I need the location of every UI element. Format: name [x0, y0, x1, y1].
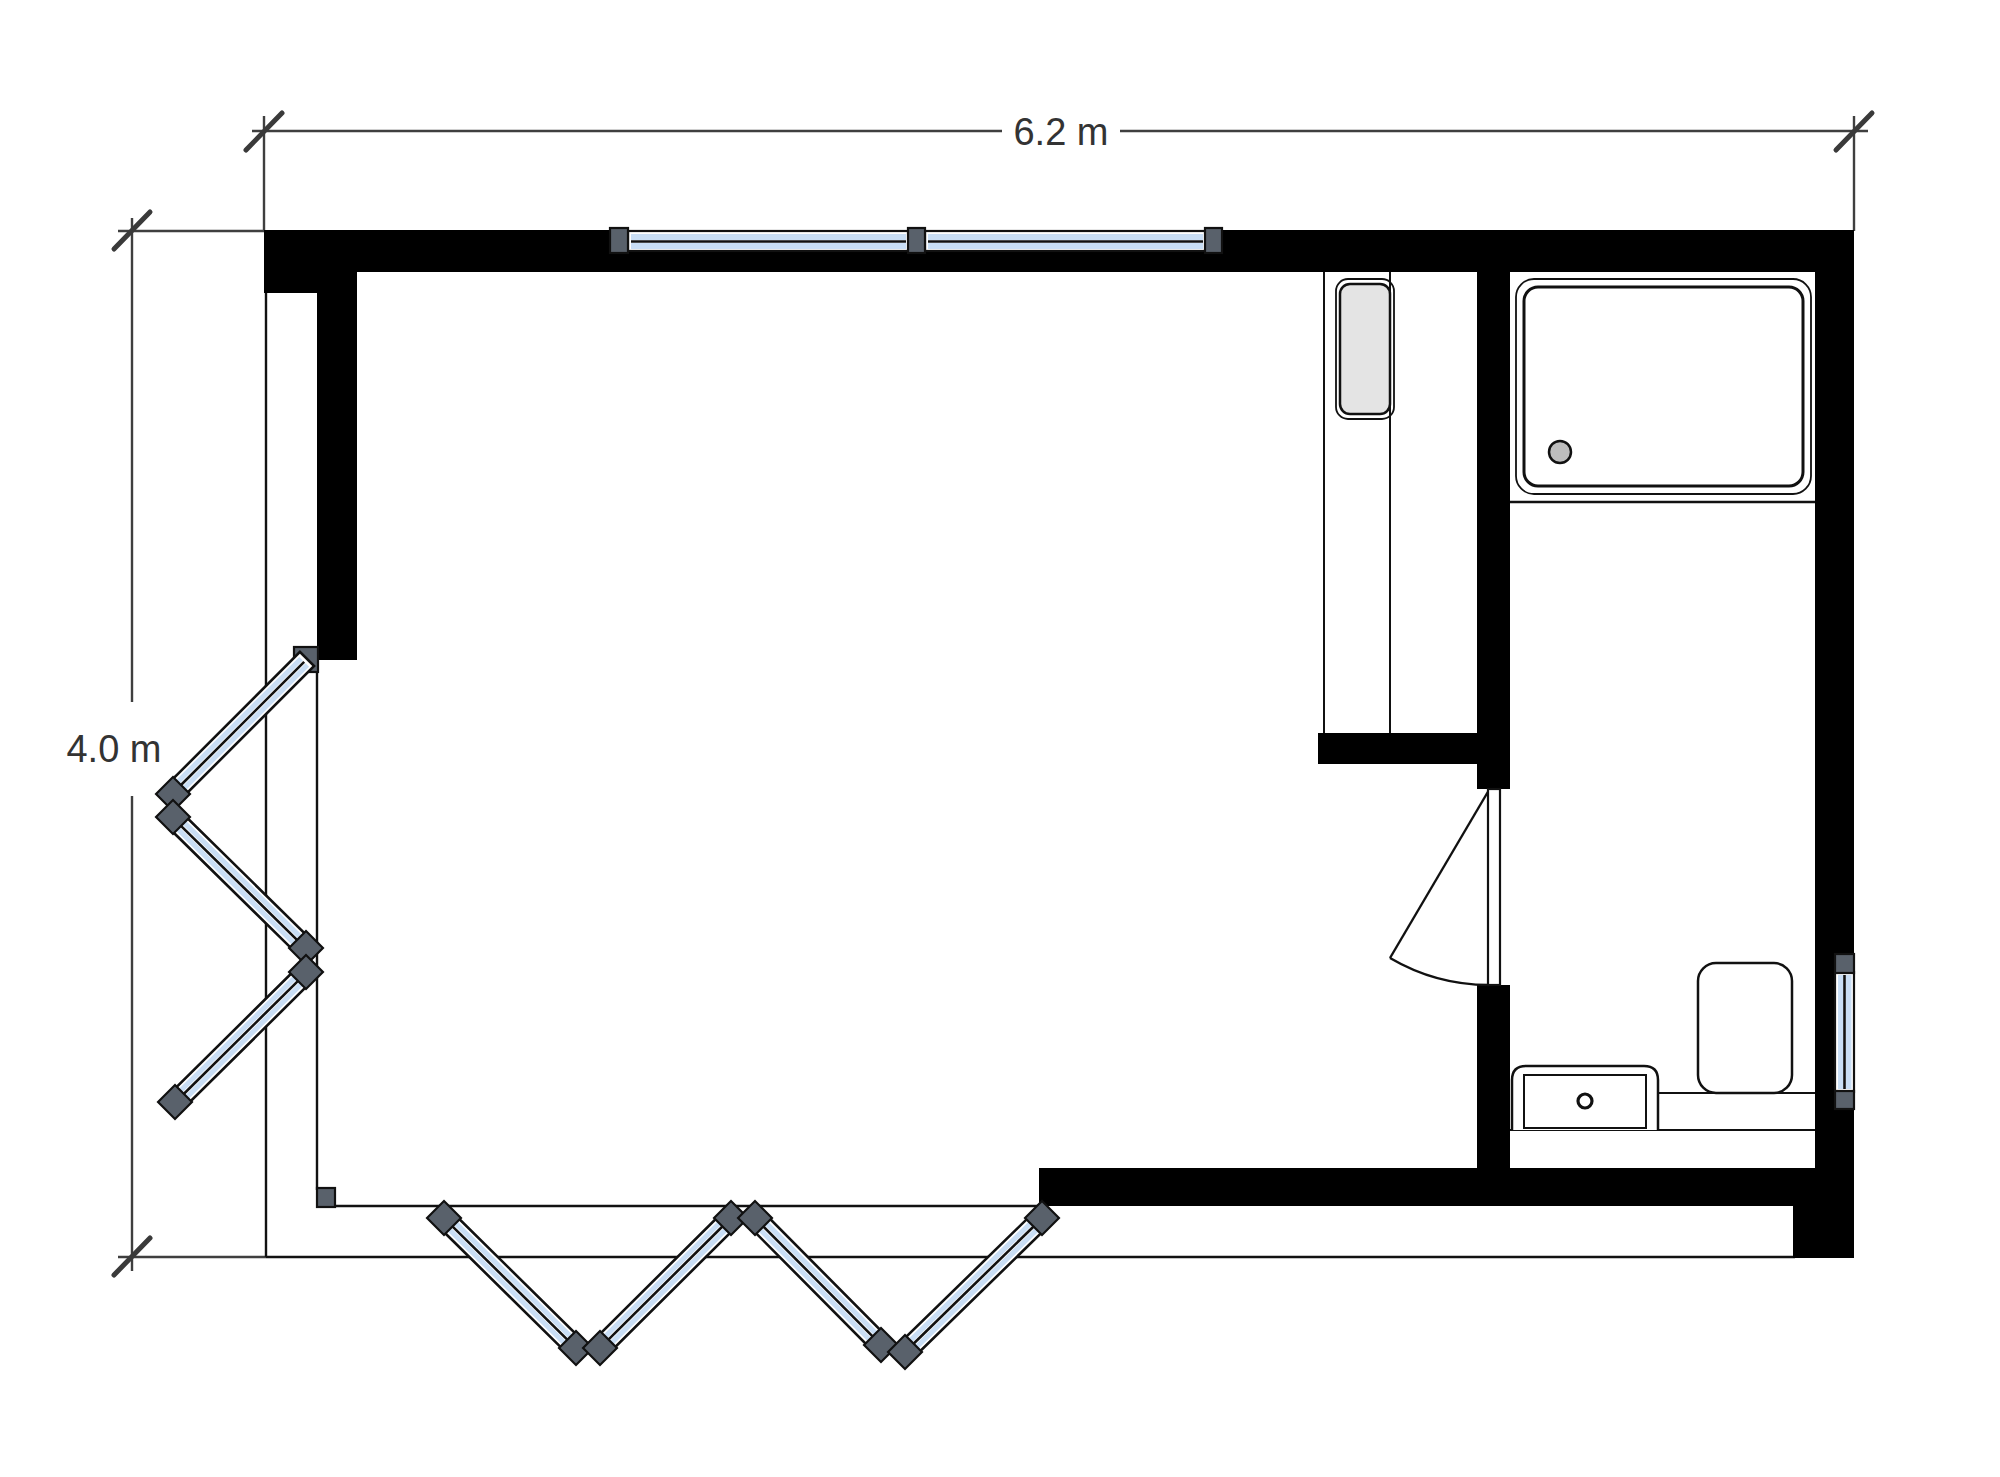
bifold-panel: [437, 1211, 583, 1355]
bifold-panel: [593, 1211, 738, 1356]
shower: [1510, 279, 1815, 502]
shower-drain: [1549, 441, 1571, 463]
bifold-panel: [166, 652, 314, 800]
toilet: [1698, 963, 1792, 1093]
door-open-leaf-line: [1390, 790, 1489, 958]
interior-wall-horizontal: [1318, 733, 1510, 764]
window-post: [610, 228, 628, 253]
fixtures: [1324, 272, 1815, 1130]
door-leaf: [1488, 789, 1500, 985]
window-glass: [631, 234, 906, 240]
bifold-panel: [167, 966, 313, 1111]
bathroom-partition-wall-lower: [1477, 985, 1510, 1168]
left-wall-segment: [317, 293, 357, 660]
window-post: [1205, 228, 1222, 253]
bifold-panel: [748, 1211, 888, 1352]
window-glass: [1838, 975, 1844, 1089]
window-glass: [631, 243, 906, 249]
faucet: [1578, 1094, 1592, 1108]
bifold-door-bottom: [317, 1188, 1059, 1369]
bifold-door-left: [156, 647, 323, 1119]
top-dimension: 6.2 m: [246, 111, 1872, 231]
window-post: [908, 228, 925, 253]
floor-plan-svg: 6.2 m 4.0 m: [0, 0, 2000, 1477]
top-left-corner-block: [264, 272, 357, 293]
corner-post: [317, 1188, 335, 1207]
appliance-top: [1340, 284, 1390, 414]
height-dimension-label: 4.0 m: [66, 728, 161, 770]
bifold-panel: [898, 1211, 1049, 1359]
width-dimension-label: 6.2 m: [1013, 111, 1108, 153]
bottom-right-corner-block: [1793, 1168, 1854, 1258]
top-window-1: [628, 231, 909, 251]
window-glass: [928, 234, 1203, 240]
right-window: [1835, 954, 1854, 1109]
bathroom-door: [1390, 789, 1500, 985]
window-glass: [1846, 975, 1852, 1089]
door-swing-arc: [1390, 958, 1489, 985]
window-post: [1835, 1091, 1854, 1109]
bathroom-partition-wall-upper: [1477, 272, 1510, 789]
window-post: [1835, 954, 1854, 973]
bottom-wall: [1039, 1168, 1853, 1206]
bifold-panel: [166, 811, 313, 956]
floor-plan-canvas: 6.2 m 4.0 m: [0, 0, 2000, 1477]
top-window-2: [925, 231, 1206, 251]
tall-cabinet-unit: [1324, 272, 1394, 733]
window-glass: [928, 243, 1203, 249]
